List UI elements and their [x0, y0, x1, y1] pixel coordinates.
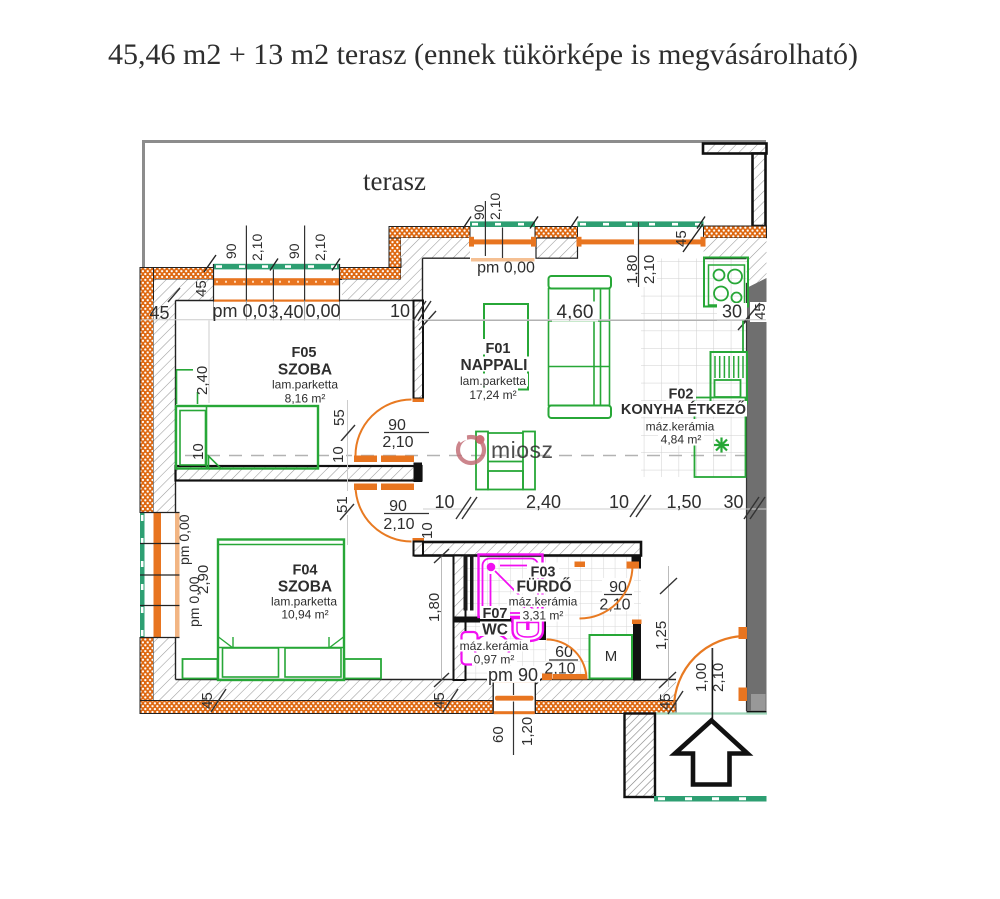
svg-text:pm 0,0: pm 0,0	[212, 301, 267, 321]
svg-text:pm 0,00: pm 0,00	[477, 260, 535, 277]
svg-text:45,46 m2 + 13 m2 terasz (ennek: 45,46 m2 + 13 m2 terasz (ennek tükörképe…	[108, 38, 858, 71]
svg-text:1,20: 1,20	[519, 717, 536, 746]
svg-text:90: 90	[388, 417, 406, 434]
svg-text:1,00: 1,00	[693, 663, 710, 692]
svg-text:2,90: 2,90	[195, 565, 212, 594]
svg-text:45: 45	[193, 280, 210, 297]
svg-text:lam.parketta: lam.parketta	[460, 374, 526, 388]
svg-text:2,10: 2,10	[383, 516, 414, 533]
svg-text:NAPPALI: NAPPALI	[461, 357, 528, 374]
svg-text:3,40: 3,40	[268, 302, 303, 322]
svg-text:90: 90	[471, 204, 487, 220]
svg-text:10: 10	[390, 301, 410, 321]
svg-text:F02: F02	[669, 387, 694, 403]
svg-text:WC: WC	[482, 622, 508, 639]
svg-text:10: 10	[330, 446, 347, 463]
svg-text:máz.kerámia: máz.kerámia	[460, 639, 529, 653]
svg-text:2,10: 2,10	[382, 434, 413, 451]
svg-text:F07: F07	[483, 606, 508, 622]
svg-text:0,00: 0,00	[305, 301, 340, 321]
svg-text:45: 45	[673, 230, 690, 247]
svg-text:2,10: 2,10	[641, 255, 658, 284]
svg-text:2,40: 2,40	[194, 366, 211, 395]
svg-text:55: 55	[331, 409, 348, 426]
svg-text:60: 60	[490, 726, 507, 743]
svg-text:1,80: 1,80	[426, 593, 443, 622]
svg-text:4,84 m²: 4,84 m²	[661, 433, 702, 447]
svg-text:45: 45	[431, 692, 448, 709]
svg-text:FÜRDŐ: FÜRDŐ	[516, 578, 571, 596]
svg-text:KONYHA ÉTKEZŐ: KONYHA ÉTKEZŐ	[621, 400, 746, 418]
svg-text:máz.kerámia: máz.kerámia	[509, 595, 578, 609]
svg-text:máz.kerámia: máz.kerámia	[646, 420, 715, 434]
svg-text:1,50: 1,50	[666, 492, 701, 512]
svg-text:10,94 m²: 10,94 m²	[281, 608, 328, 622]
svg-text:SZOBA: SZOBA	[278, 362, 332, 379]
svg-text:3,31 m²: 3,31 m²	[523, 609, 564, 623]
svg-text:90: 90	[286, 243, 302, 259]
svg-text:2,40: 2,40	[526, 492, 561, 512]
svg-text:F01: F01	[486, 341, 511, 357]
svg-text:90: 90	[223, 243, 239, 259]
svg-text:pm 90: pm 90	[488, 665, 538, 685]
svg-text:10: 10	[190, 443, 207, 460]
svg-text:90: 90	[389, 498, 407, 515]
svg-text:lam.parketta: lam.parketta	[271, 595, 337, 609]
svg-text:2,10: 2,10	[312, 234, 328, 261]
svg-text:1,25: 1,25	[653, 621, 670, 650]
svg-text:45: 45	[752, 303, 769, 320]
svg-text:terasz: terasz	[363, 166, 426, 196]
svg-text:miosz: miosz	[491, 437, 554, 463]
svg-text:45: 45	[199, 692, 216, 709]
svg-text:10: 10	[434, 492, 454, 512]
svg-text:2,10: 2,10	[710, 663, 727, 692]
svg-text:pm 0,00: pm 0,00	[176, 514, 192, 565]
svg-text:lam.parketta: lam.parketta	[272, 378, 338, 392]
svg-text:10: 10	[419, 522, 436, 539]
svg-text:45: 45	[149, 303, 169, 323]
svg-text:10: 10	[609, 492, 629, 512]
svg-text:1,80: 1,80	[624, 255, 641, 284]
svg-text:F05: F05	[292, 345, 317, 361]
svg-text:17,24 m²: 17,24 m²	[469, 388, 516, 402]
svg-text:2,10: 2,10	[487, 193, 503, 220]
svg-text:F04: F04	[293, 563, 318, 579]
svg-text:M: M	[605, 648, 618, 665]
svg-text:SZOBA: SZOBA	[278, 579, 332, 596]
svg-text:2,10: 2,10	[249, 234, 265, 261]
svg-text:30: 30	[723, 492, 743, 512]
svg-text:8,16 m²: 8,16 m²	[285, 392, 326, 406]
svg-text:30: 30	[722, 302, 742, 322]
